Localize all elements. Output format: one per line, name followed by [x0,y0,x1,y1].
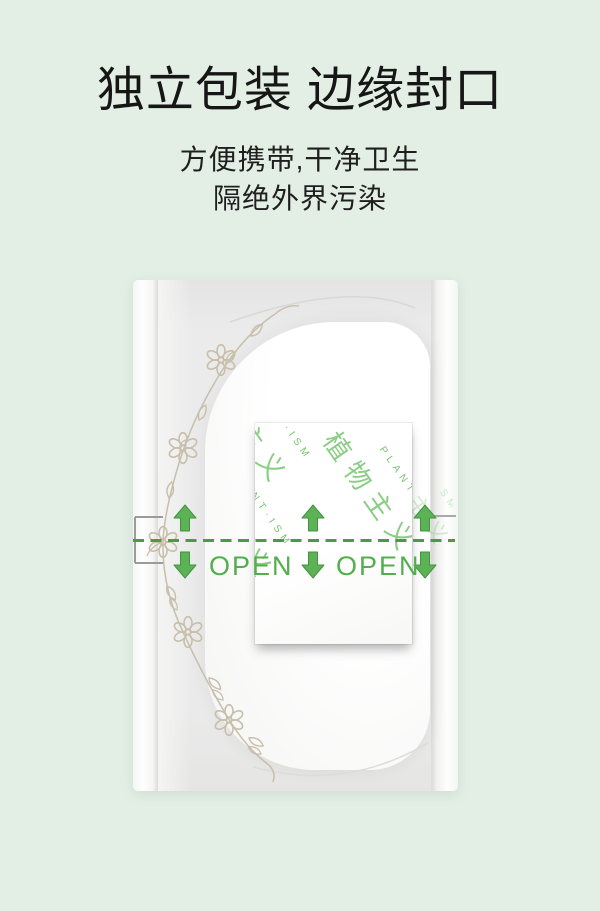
arrow-up-icon [302,505,324,531]
arrow-up-icon [174,505,196,531]
subtitle-line-1: 方便携带,干净卫生 [0,140,600,179]
open-label-left: OPEN [209,551,275,582]
product-package-image: PLANT·ISM 植物主义 PLANT·ISM 植物主义 PLANT·ISM … [133,280,458,791]
open-guide-overlay [133,280,458,791]
product-promo-page: 独立包装 边缘封口 方便携带,干净卫生 隔绝外界污染 [0,0,600,911]
open-label-right: OPEN [336,551,402,582]
arrow-up-icon [414,505,436,531]
page-title: 独立包装 边缘封口 [0,50,600,120]
arrow-down-icon [302,552,324,578]
arrow-down-icon [174,552,196,578]
page-subtitle: 方便携带,干净卫生 隔绝外界污染 [0,140,600,218]
subtitle-line-2: 隔绝外界污染 [0,179,600,218]
